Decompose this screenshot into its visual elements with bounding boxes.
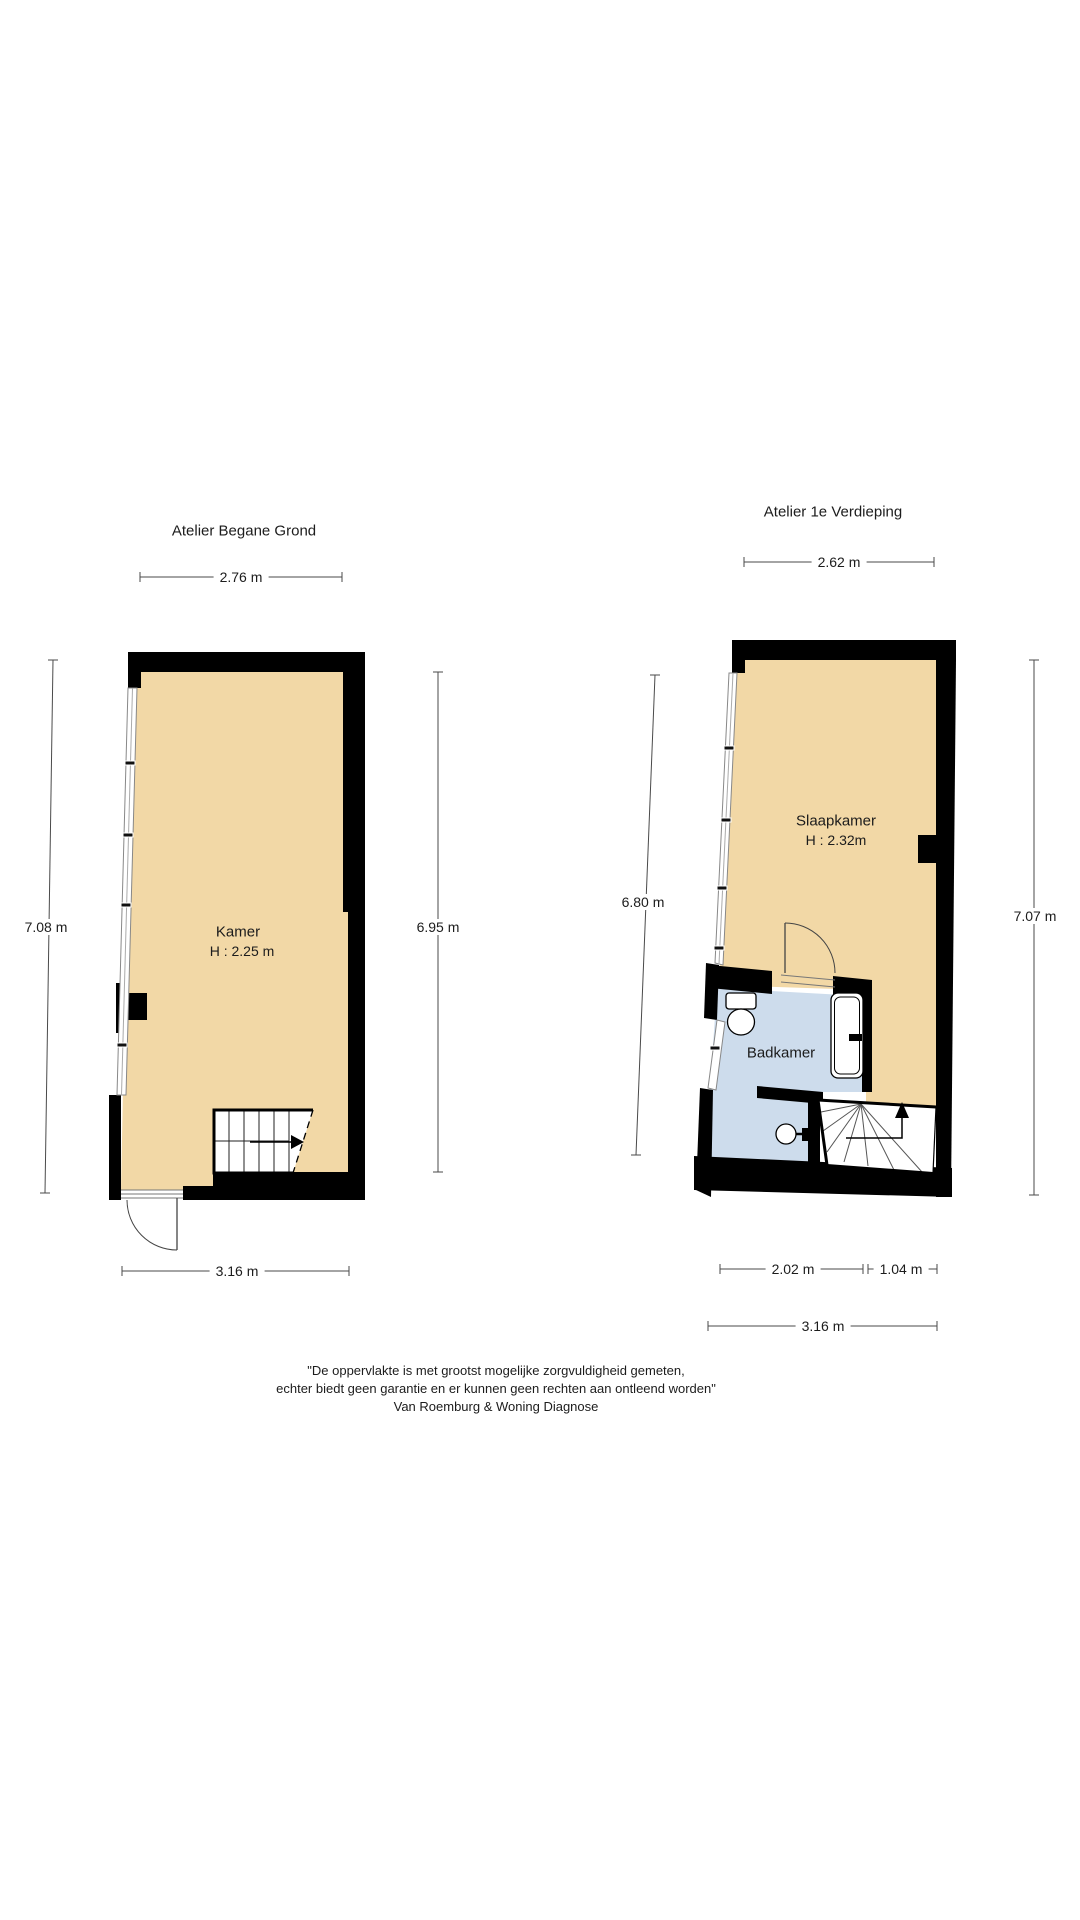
ff-dim-bottom-total-label: 3.16 m	[796, 1318, 851, 1334]
ff-bathtub	[831, 993, 863, 1078]
ff-bedroom-ceiling-height: H : 2.32m	[806, 832, 867, 848]
ff-dim-right-label: 7.07 m	[1008, 908, 1063, 924]
ff-bathroom-name: Badkamer	[747, 1045, 815, 1062]
ff-bedroom-name: Slaapkamer	[796, 813, 876, 830]
gf-dim-right-label: 6.95 m	[411, 919, 466, 935]
gf-dim-left-label: 7.08 m	[19, 919, 74, 935]
first-floor-title: Atelier 1e Verdieping	[764, 504, 902, 521]
floorplan-drawing	[0, 0, 1080, 1920]
floorplan-page: Atelier Begane Grond 2.76 m Kamer H : 2.…	[0, 0, 1080, 1920]
disclaimer-line-1: "De oppervlakte is met grootst mogelijke…	[307, 1362, 684, 1380]
ff-dim-left-label: 6.80 m	[616, 894, 671, 910]
disclaimer-line-3: Van Roemburg & Woning Diagnose	[394, 1398, 599, 1416]
ff-stairs	[818, 1100, 936, 1173]
ff-dim-bottom-left-label: 2.02 m	[766, 1261, 821, 1277]
gf-dim-bottom-label: 3.16 m	[210, 1263, 265, 1279]
ff-dim-bottom-right-label: 1.04 m	[874, 1261, 929, 1277]
gf-entrance-door	[121, 1190, 183, 1250]
gf-dim-top-label: 2.76 m	[214, 569, 269, 585]
ff-dim-top-label: 2.62 m	[812, 554, 867, 570]
disclaimer-line-2: echter biedt geen garantie en er kunnen …	[276, 1380, 716, 1398]
ground-floor-title: Atelier Begane Grond	[172, 523, 316, 540]
ff-toilet	[726, 993, 756, 1035]
gf-room-ceiling-height: H : 2.25 m	[210, 943, 275, 959]
gf-room-name: Kamer	[216, 924, 260, 941]
first-floor-plan	[631, 557, 1039, 1331]
